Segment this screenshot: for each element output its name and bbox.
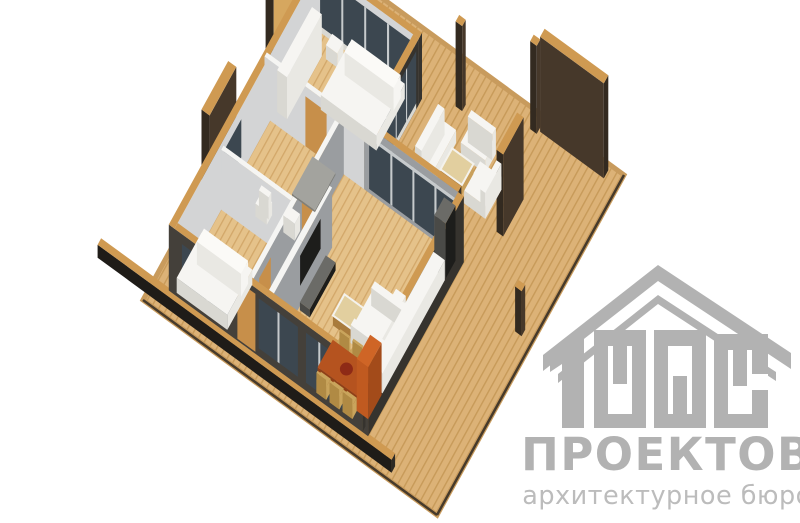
watermark-logo: 1000 ПРОЕКТОВ архитектурное бюро	[521, 265, 800, 511]
floorplan-page: 1000 ПРОЕКТОВ архитектурное бюро	[0, 0, 800, 523]
logo-number-1000: 1000	[550, 324, 768, 428]
logo-title: ПРОЕКТОВ	[521, 428, 800, 481]
floorplan-render: 1000 ПРОЕКТОВ архитектурное бюро	[0, 0, 800, 523]
logo-subtitle: архитектурное бюро	[522, 481, 800, 511]
